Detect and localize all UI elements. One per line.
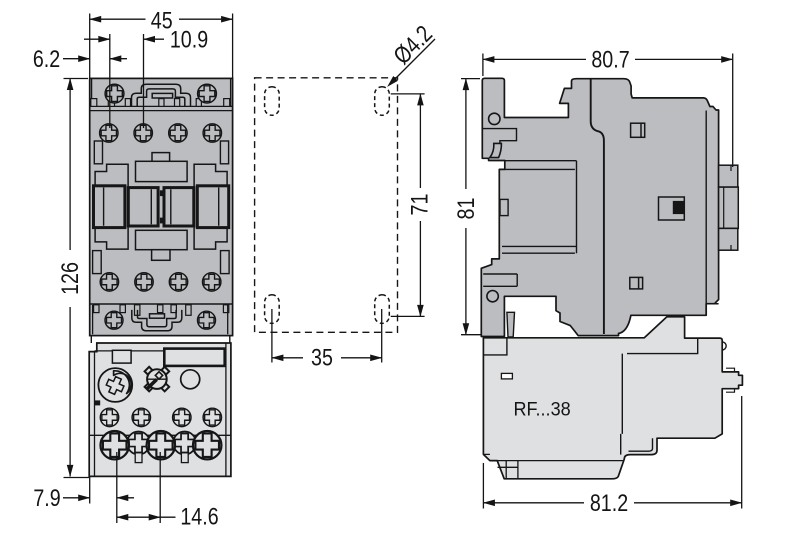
svg-text:35: 35 xyxy=(311,344,333,371)
svg-text:14.6: 14.6 xyxy=(180,503,218,530)
svg-text:81: 81 xyxy=(452,198,479,220)
svg-text:10.9: 10.9 xyxy=(170,26,208,53)
svg-text:71: 71 xyxy=(405,194,432,216)
svg-text:RF...38: RF...38 xyxy=(514,398,571,420)
svg-text:7.9: 7.9 xyxy=(33,484,60,511)
svg-text:80.7: 80.7 xyxy=(591,46,629,73)
svg-text:6.2: 6.2 xyxy=(33,45,60,72)
svg-text:81.2: 81.2 xyxy=(590,489,628,516)
svg-text:126: 126 xyxy=(56,262,83,295)
